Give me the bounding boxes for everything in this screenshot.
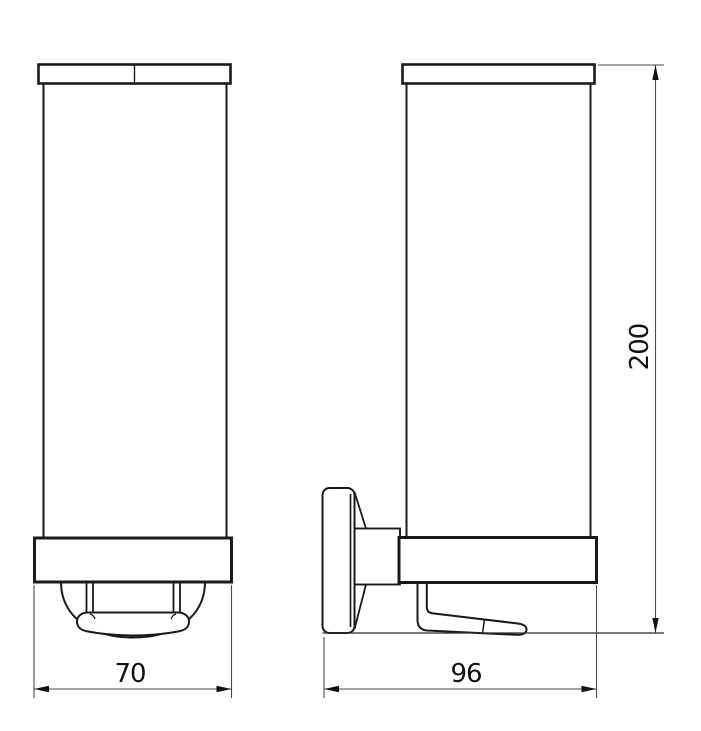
dim200-arrow-bottom bbox=[652, 618, 658, 633]
dim96-arrow-left bbox=[324, 686, 339, 692]
side-collar bbox=[399, 538, 597, 583]
dimension-side-depth: 96 bbox=[324, 585, 597, 698]
technical-drawing: 70 96 200 bbox=[0, 0, 701, 731]
dim200-label: 200 bbox=[625, 324, 655, 371]
side-cap bbox=[403, 65, 595, 84]
side-taper-top bbox=[355, 492, 367, 529]
dim70-arrow-right bbox=[217, 686, 232, 692]
dim96-arrow-right bbox=[582, 686, 597, 692]
front-collar bbox=[35, 538, 232, 582]
front-wire-post-right bbox=[174, 582, 181, 614]
side-mount-arm bbox=[354, 529, 400, 585]
side-wire-hook bbox=[418, 581, 527, 635]
front-wire-post-left bbox=[87, 582, 94, 614]
side-view bbox=[323, 65, 665, 635]
dim70-arrow-left bbox=[34, 686, 49, 692]
dimension-overall-height: 200 bbox=[598, 65, 664, 633]
dim70-label: 70 bbox=[114, 659, 145, 689]
dim200-arrow-top bbox=[652, 65, 658, 80]
dim96-label: 96 bbox=[450, 659, 481, 689]
technical-drawing-canvas: 70 96 200 bbox=[0, 0, 701, 731]
side-taper-bottom bbox=[355, 585, 367, 630]
front-view bbox=[35, 65, 232, 638]
